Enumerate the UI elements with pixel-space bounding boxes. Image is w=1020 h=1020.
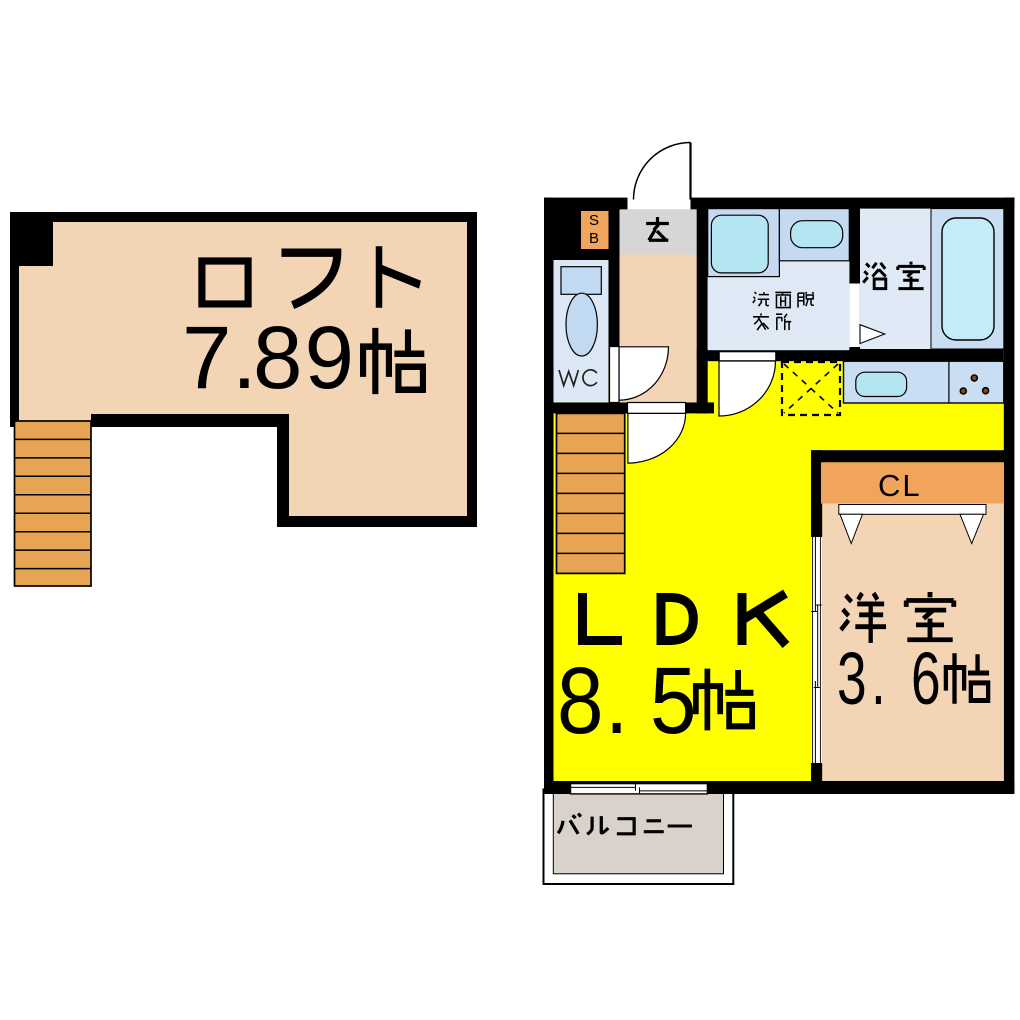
svg-text:5: 5 [650, 647, 696, 753]
svg-text:3: 3 [837, 637, 867, 720]
svg-text:S: S [589, 212, 599, 229]
svg-text:8: 8 [557, 647, 603, 753]
svg-text:CL: CL [878, 468, 922, 503]
svg-text:.: . [605, 647, 628, 753]
svg-text:7.89: 7.89 [182, 307, 354, 407]
svg-text:.: . [871, 637, 886, 720]
svg-text:6: 6 [911, 637, 941, 720]
svg-text:B: B [589, 230, 599, 247]
